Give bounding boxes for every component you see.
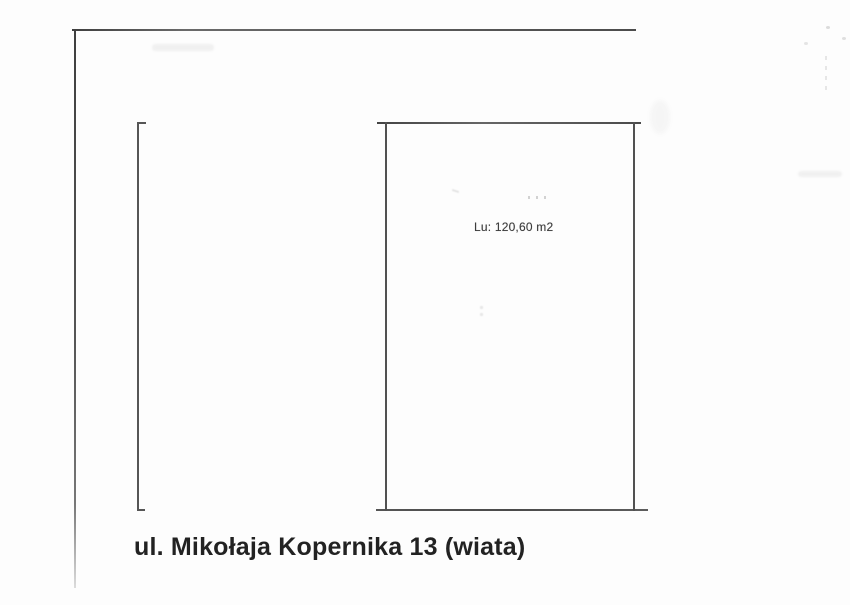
parcel-outline-left-line [385,122,387,511]
west-boundary-bottom-tick [137,509,145,511]
parcel-outline-bottom-line [376,509,648,511]
scan-artifact-dot-pair [480,306,483,318]
scan-artifact-edge-dashes [825,56,827,94]
parcel-outline-top-line [377,122,641,124]
scan-artifact-edge-dot [826,26,830,29]
scan-artifact-edge-dot [842,37,846,40]
parcel-outline-right-line [633,122,635,511]
scan-artifact-smudge [152,44,214,51]
west-boundary-top-tick [137,122,146,124]
scanned-site-plan-page: Lu: 120,60 m2 ul. Mikołaja Kopernika 13 … [0,0,850,605]
page-frame-left-line [74,29,76,588]
scan-artifact-blob [650,100,670,134]
scan-artifact-smudge [798,171,842,177]
area-label: Lu: 120,60 m2 [474,220,553,234]
west-boundary-line [137,123,139,511]
scan-artifact-tick [452,189,459,193]
page-frame-top-line [72,29,636,31]
scan-artifact-edge-dot [804,42,808,45]
address-caption: ul. Mikołaja Kopernika 13 (wiata) [134,533,525,562]
scan-artifact-dots [528,196,548,199]
